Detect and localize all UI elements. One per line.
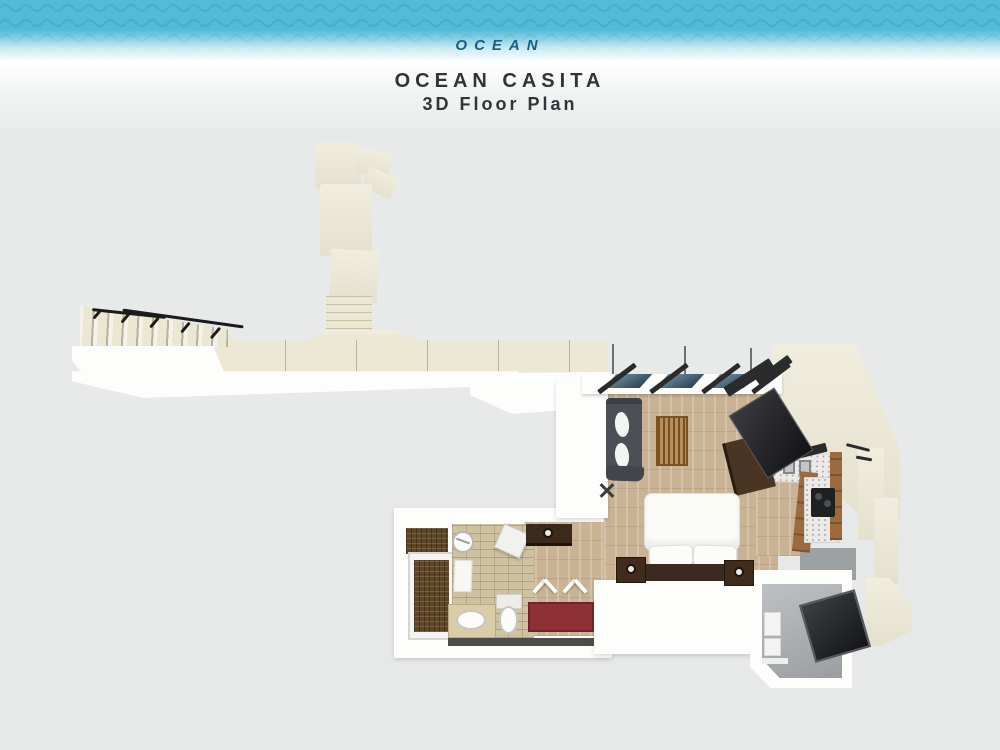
walkway-mid: [320, 184, 372, 256]
terrace-step-b: [874, 498, 898, 584]
page-title: OCEAN CASITA: [0, 70, 1000, 93]
bathroom-base-strip: [448, 638, 594, 646]
vanity-sink: [456, 610, 486, 630]
bedroom-bottom-wall: [594, 580, 758, 654]
utility-ledge: [762, 658, 788, 664]
terrace-step-c: [866, 578, 912, 646]
closet-floor: [406, 528, 448, 554]
cooktop: [811, 488, 835, 517]
red-rug: [528, 602, 594, 632]
floor-plan-page: OCEAN OCEAN CASITA 3D Floor Plan: [0, 0, 1000, 750]
hall-console-knob: [543, 528, 553, 538]
nightstand-left-knob: [626, 564, 636, 574]
deck-fascia-left: [72, 370, 518, 398]
deck-landing: [72, 346, 224, 372]
ocean-band-label: OCEAN: [0, 37, 1000, 54]
shower-floor: [414, 560, 449, 632]
page-subtitle: 3D Floor Plan: [0, 94, 1000, 115]
utility-shelf-2: [764, 638, 781, 656]
cooktop-burner-1: [815, 493, 822, 500]
sun-deck: [215, 340, 607, 372]
bath-mat: [453, 560, 472, 593]
cooktop-burner-2: [824, 500, 831, 507]
coffee-table: [656, 416, 688, 466]
walkway-top: [315, 143, 361, 189]
window-post-1: [612, 344, 614, 374]
bed-duvet: [644, 493, 740, 551]
nightstand-right-knob: [734, 567, 744, 577]
sofa-armrest: [606, 465, 645, 481]
utility-shelf-1: [764, 612, 781, 636]
toilet-bowl: [499, 606, 518, 634]
